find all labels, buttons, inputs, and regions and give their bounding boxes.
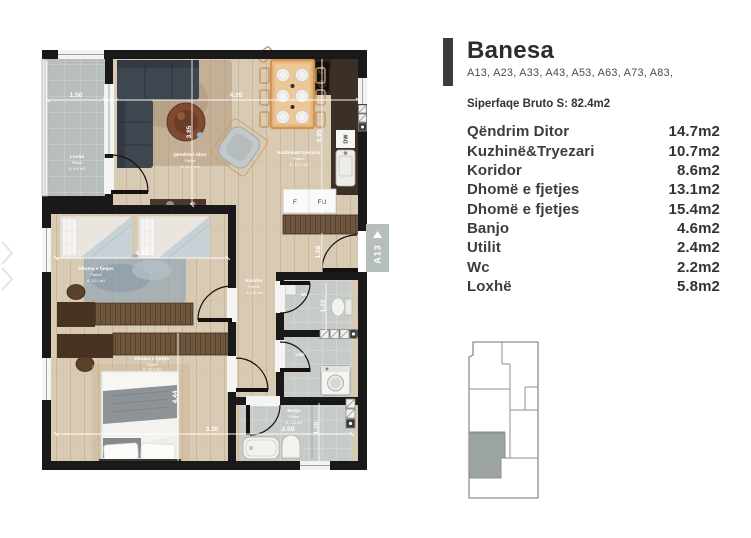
svg-text:Parket: Parket: [90, 272, 102, 277]
fridge-icon: F FU: [283, 189, 336, 213]
single-bed-icon: [138, 216, 210, 258]
entry-wardrobe: [283, 215, 359, 234]
desk-icon: [57, 334, 113, 358]
dim-label: 1.10: [313, 421, 320, 434]
building-locator-map: [469, 342, 538, 498]
unit-tag-label: A13: [373, 244, 383, 264]
toilet-icon: [332, 298, 353, 316]
dim-label: 3.95: [316, 129, 323, 142]
room-name: Wc: [467, 259, 490, 276]
dishwasher-icon: DW: [336, 130, 355, 148]
room-area: 10.7m2: [669, 143, 720, 160]
room-row: Wc2.2m2: [467, 257, 720, 276]
svg-text:Parket: Parket: [293, 156, 305, 161]
apartment-title: Banesa: [467, 38, 673, 63]
window-icon: [42, 358, 51, 400]
balcony-floor: [46, 59, 105, 196]
gross-area-line: Siperfaqe Bruto S: 82.4m2: [467, 98, 720, 110]
single-bed-icon: [60, 216, 132, 258]
svg-text:Parket: Parket: [248, 284, 260, 289]
dim-label: 3.20: [206, 426, 219, 433]
washing-machine-icon: [321, 366, 350, 395]
dim-label: 4.35: [230, 92, 243, 99]
room-name: Banjo: [467, 220, 509, 237]
dim-label: 2.00: [282, 426, 295, 433]
room-name: Utilit: [467, 239, 501, 256]
bedroom2-wardrobe: [113, 333, 233, 355]
svg-text:S: 14.7 m2: S: 14.7 m2: [181, 164, 200, 169]
svg-text:S: 10.7 m2: S: 10.7 m2: [290, 162, 309, 167]
svg-text:Pllake: Pllake: [72, 160, 83, 165]
room-row: Dhomë e fjetjes15.4m2: [467, 199, 720, 218]
room-row: Qëndrim Ditor14.7m2: [467, 122, 720, 141]
apartment-codes: A13, A23, A33, A43, A53, A63, A73, A83,: [467, 67, 673, 80]
window-icon: [42, 228, 51, 272]
balcony-railing: [42, 60, 48, 196]
room-area: 14.7m2: [669, 123, 720, 140]
svg-text:S: 4.6 m2: S: 4.6 m2: [286, 420, 303, 425]
title-accent-bar: [443, 38, 453, 86]
svg-text:S: 8.6 m2: S: 8.6 m2: [246, 290, 263, 295]
dim-label: 3.85: [186, 125, 193, 138]
window-icon: [358, 78, 367, 104]
room-name: Dhomë e fjetjes: [467, 201, 579, 218]
room-area: 15.4m2: [669, 201, 720, 218]
title-row: Banesa A13, A23, A33, A43, A53, A63, A73…: [443, 38, 720, 86]
room-row: Banjo4.6m2: [467, 219, 720, 238]
svg-text:Parket: Parket: [184, 158, 196, 163]
page: DW F FU: [0, 0, 751, 538]
room-list: Qëndrim Ditor14.7m2 Kuzhinë&Tryezari10.7…: [467, 122, 720, 296]
room-area: 4.6m2: [677, 220, 720, 237]
dim-label: 4.44: [172, 390, 179, 403]
svg-text:S: 13.1 m2: S: 13.1 m2: [87, 278, 106, 283]
room-row: Dhomë e fjetjes13.1m2: [467, 180, 720, 199]
room-area: 13.1m2: [669, 181, 720, 198]
edge-chevron-icon: [2, 242, 12, 290]
room-name: Loxhë: [467, 278, 512, 295]
room-row: Koridor8.6m2: [467, 161, 720, 180]
toilet-icon: [282, 435, 300, 458]
unit-entrance-tag: A13: [366, 224, 389, 272]
dim-label: 1.22: [320, 299, 327, 312]
current-unit-highlight: [469, 433, 505, 478]
window-icon: [58, 50, 104, 59]
dim-label: 1.50: [70, 92, 83, 99]
window-icon: [300, 461, 330, 470]
chair-icon: [67, 285, 85, 300]
room-row: Kuzhinë&Tryezari10.7m2: [467, 141, 720, 160]
svg-text:Pllake: Pllake: [289, 414, 300, 419]
fridge-label: F: [293, 199, 297, 206]
dresser-icon: [57, 302, 95, 327]
room-label-wc: Wc: [301, 292, 308, 297]
window-icon: [104, 84, 114, 154]
info-panel: Banesa A13, A23, A33, A43, A53, A63, A73…: [443, 38, 720, 296]
room-area: 8.6m2: [677, 162, 720, 179]
room-area: 2.4m2: [677, 239, 720, 256]
chair-icon: [76, 357, 94, 372]
svg-text:S: 5.8 m2: S: 5.8 m2: [69, 166, 86, 171]
double-bed-icon: [99, 371, 181, 463]
dim-label: 1.58: [315, 245, 322, 258]
room-name: Dhomë e fjetjes: [467, 181, 579, 198]
room-row: Utilit2.4m2: [467, 238, 720, 257]
room-area: 5.8m2: [677, 278, 720, 295]
bathtub-icon: [243, 437, 279, 459]
room-area: 2.2m2: [677, 259, 720, 276]
bedroom1-wardrobe: [95, 303, 193, 325]
dishwasher-label: DW: [344, 134, 350, 144]
room-name: Qëndrim Ditor: [467, 123, 569, 140]
room-label-utilit: Utilit: [295, 352, 305, 357]
dim-label: 4.42: [136, 250, 149, 257]
room-name: Koridor: [467, 162, 522, 179]
svg-text:S: 15.4 m2: S: 15.4 m2: [143, 367, 162, 372]
room-name: Kuzhinë&Tryezari: [467, 143, 594, 160]
kitchen-sink-icon: [336, 150, 355, 186]
room-row: Loxhë5.8m2: [467, 277, 720, 296]
